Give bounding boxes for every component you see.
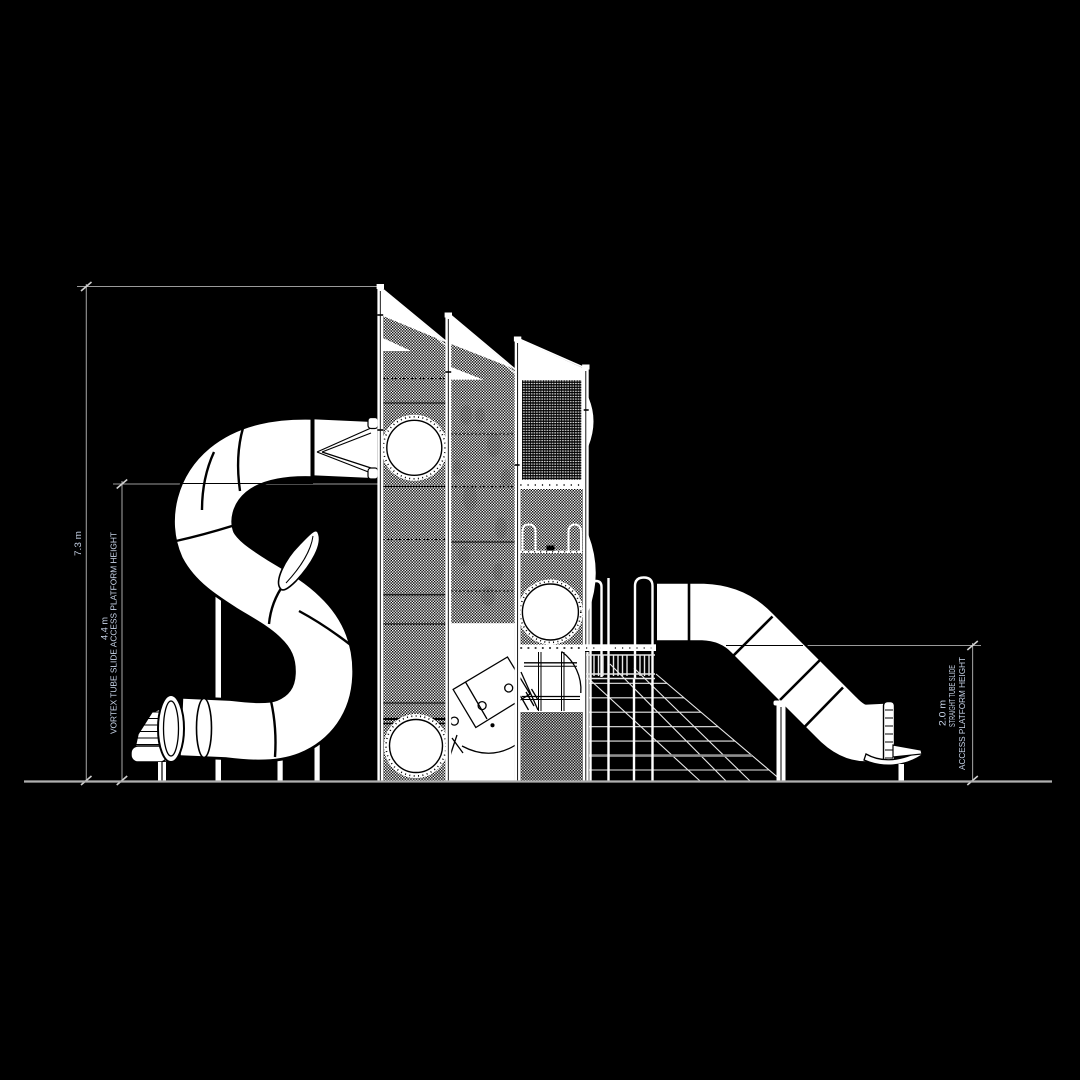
svg-text:STRAIGHT TUBE SLIDE: STRAIGHT TUBE SLIDE bbox=[947, 665, 957, 727]
svg-text:VORTEX TUBE SLIDE ACCESS PLATF: VORTEX TUBE SLIDE ACCESS PLATFORM HEIGHT bbox=[109, 532, 119, 734]
svg-text:ACCESS PLATFORM HEIGHT: ACCESS PLATFORM HEIGHT bbox=[957, 657, 967, 770]
svg-text:7.3 m: 7.3 m bbox=[73, 531, 83, 556]
svg-text:2.0 m: 2.0 m bbox=[938, 700, 948, 726]
